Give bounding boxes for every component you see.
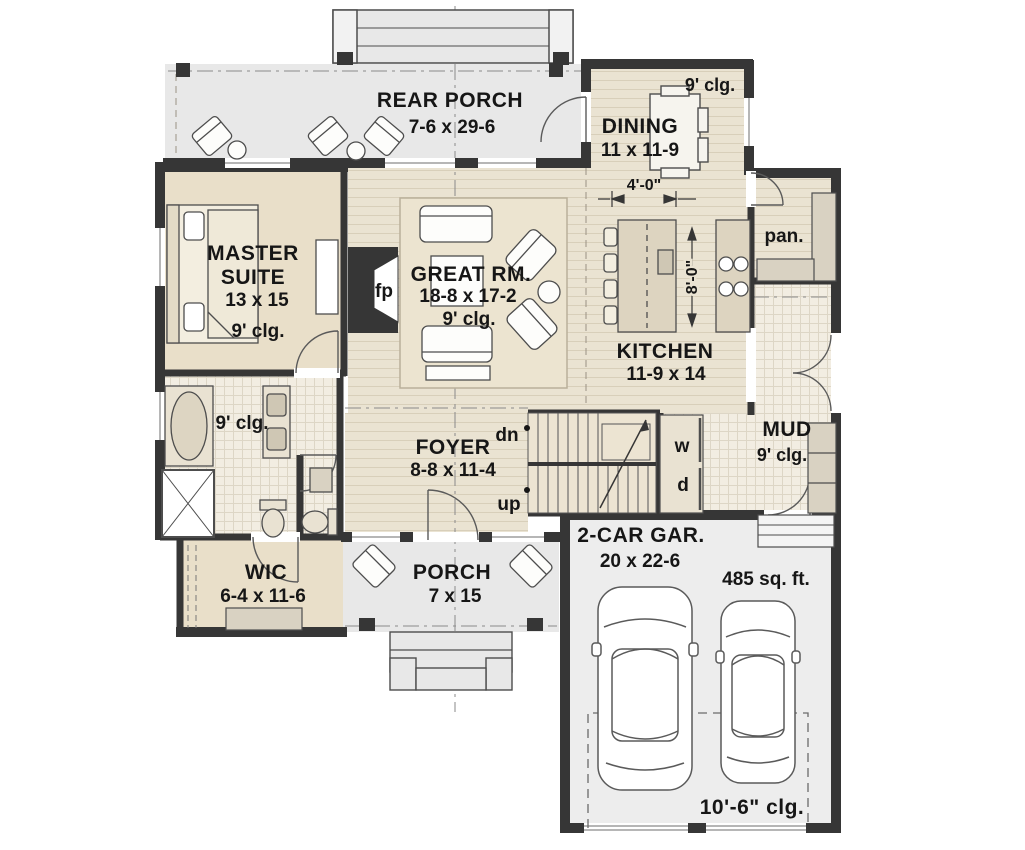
great-room-dims: 18-8 x 17-2 [419,286,516,307]
rear-porch-post [549,63,563,77]
master-name-2: SUITE [221,266,285,289]
tub [171,392,207,460]
garage-dims: 20 x 22-6 [600,551,680,572]
dim-passage: 4'-0" [627,177,662,194]
rear-porch-dims: 7-6 x 29-6 [409,117,496,138]
porch-step-rail [486,658,512,690]
bed-pillow [184,212,204,240]
burner [719,282,733,296]
range-counter [716,220,750,332]
pantry-shelf-bottom [757,259,814,281]
dining-chair [698,138,708,162]
island-stool [604,228,617,246]
stairs [524,413,656,513]
porch-post [527,618,543,631]
island-stool [604,280,617,298]
up-dot [524,487,530,493]
door-gap-pantry [746,171,756,207]
garage-entry-steps [758,515,834,547]
door-gap-side-entry [831,333,841,413]
burner [719,257,733,271]
powder-toilet-bowl [302,511,328,533]
island-stool [604,306,617,324]
porch-step-lower [416,668,486,690]
car-mirror [792,651,800,663]
dining-chair [661,168,689,178]
pantry-name: pan. [764,226,803,247]
kitchen-dims: 11-9 x 14 [626,364,706,385]
rear-porch-name: REAR PORCH [377,89,523,112]
door-gap-master [294,368,340,378]
wic-shelf [226,608,302,630]
bed-pillow [184,303,204,331]
stairs-down-label: dn [495,425,518,446]
island-stool [604,254,617,272]
floor-plan: REAR PORCH 7-6 x 29-6 9' clg. DINING 11 … [0,0,1025,850]
car-mirror [716,651,724,663]
sofa-top [420,206,492,242]
sink [267,428,286,450]
deck-stairs [333,10,573,65]
fireplace-label: fp [375,281,393,302]
floor-plan-drawing: REAR PORCH 7-6 x 29-6 9' clg. DINING 11 … [0,0,1025,850]
master-dims: 13 x 15 [225,290,289,311]
island-sink [658,250,673,274]
sink [267,394,286,416]
dining-chair [698,108,708,132]
great-room-name: GREAT RM. [411,263,532,286]
car-suv [592,587,698,790]
mud-lockers [808,423,836,513]
rear-porch-post [176,63,190,77]
toilet-bowl [262,509,284,537]
door-gap-kitchen-hall [746,328,756,402]
pantry-shelf-right [812,193,836,281]
master-name-1: MASTER [207,242,299,265]
stairs-up-label: up [497,494,520,515]
car-sedan [716,601,800,783]
washer-label: w [674,436,690,457]
deck-foot-left [337,52,353,65]
porch-side-table [347,142,365,160]
window-bench [316,240,338,314]
garage-name: 2-CAR GAR. [577,524,705,547]
mud-name: MUD [762,418,811,441]
mud-ceiling: 9' clg. [757,445,807,465]
porch-post [359,618,375,631]
powder-sink [310,468,332,492]
car-mirror [689,643,698,656]
burner [734,257,748,271]
master-ceiling: 9' clg. [231,321,284,342]
porch-name: PORCH [413,561,491,584]
hall-floor [753,283,836,414]
garage-door-gap-2 [706,823,806,833]
garage-area: 485 sq. ft. [722,569,810,590]
dining-ceiling: 9' clg. [685,75,735,95]
bath-ceiling: 9' clg. [215,413,268,434]
wic-name: WIC [245,561,287,584]
round-table [538,281,560,303]
ottoman [426,366,490,380]
car-mirror [592,643,601,656]
wic-dims: 6-4 x 11-6 [220,586,306,607]
dryer-label: d [677,475,689,496]
deck-platform [333,10,573,63]
kitchen-name: KITCHEN [617,340,714,363]
dining-dims: 11 x 11-9 [601,140,679,161]
garage-ceiling: 10'-6" clg. [700,796,805,819]
wd-closet [660,415,703,513]
burner [734,282,748,296]
foyer-dims: 8-8 x 11-4 [410,460,496,481]
dim-island: 8'-0" [684,260,701,295]
dn-dot [524,425,530,431]
porch-dims: 7 x 15 [429,586,482,607]
great-room-ceiling: 9' clg. [442,309,495,330]
sofa-bottom [422,326,492,362]
porch-side-table [228,141,246,159]
dining-name: DINING [602,115,679,138]
powder-toilet-tank [328,509,337,535]
porch-step-rail [390,658,416,690]
bed-headboard [167,205,179,343]
door-gap-front [413,532,479,542]
foyer-name: FOYER [416,436,491,459]
garage-door-gap-1 [584,823,688,833]
